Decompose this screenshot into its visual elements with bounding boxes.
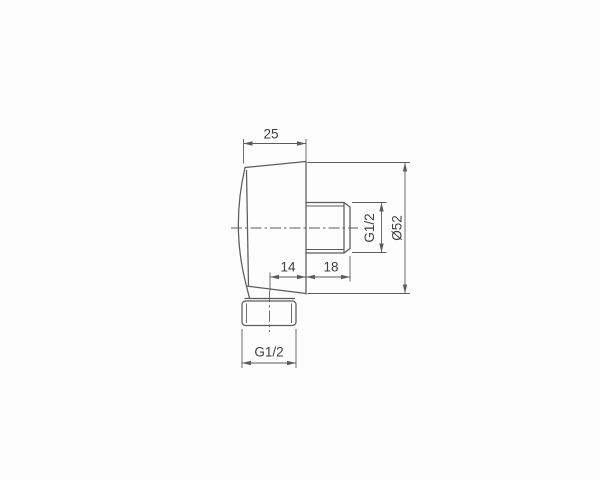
arrow-d52-down — [403, 285, 407, 294]
part-outline-group — [238, 162, 350, 326]
arrow-g12b-right — [287, 361, 296, 365]
wall-elbow-drawing: 25 G1/2 Ø52 14 18 G1/2 — [0, 0, 600, 480]
arrow-18-left — [306, 275, 315, 279]
arrow-18-right — [341, 275, 350, 279]
neck-left-edge — [247, 286, 250, 299]
escutcheon-top-edge — [245, 162, 306, 168]
dimension-text-group: 25 G1/2 Ø52 14 18 G1/2 — [254, 127, 404, 360]
dimension-label-25: 25 — [263, 127, 278, 142]
arrow-14-right — [297, 275, 306, 279]
nipple-length-label-18: 18 — [323, 260, 338, 275]
arrow-25-right — [297, 141, 306, 145]
arrow-g12-up — [379, 203, 383, 212]
bottom-outlet-outline — [242, 301, 296, 326]
arrow-14-left — [270, 275, 279, 279]
thread-label-side: G1/2 — [362, 213, 377, 242]
thread-label-bottom: G1/2 — [254, 345, 283, 360]
technical-drawing-canvas: 25 G1/2 Ø52 14 18 G1/2 — [0, 0, 600, 480]
escutcheon-bottom-edge — [247, 286, 307, 294]
offset-label-14: 14 — [280, 260, 296, 275]
arrow-25-left — [244, 141, 253, 145]
arrow-g12b-left — [242, 361, 251, 365]
centerline-group — [231, 228, 358, 332]
escutcheon-left-arc — [238, 168, 246, 287]
arrow-g12-down — [379, 244, 383, 253]
diameter-label: Ø52 — [390, 215, 405, 241]
arrow-d52-up — [403, 163, 407, 172]
